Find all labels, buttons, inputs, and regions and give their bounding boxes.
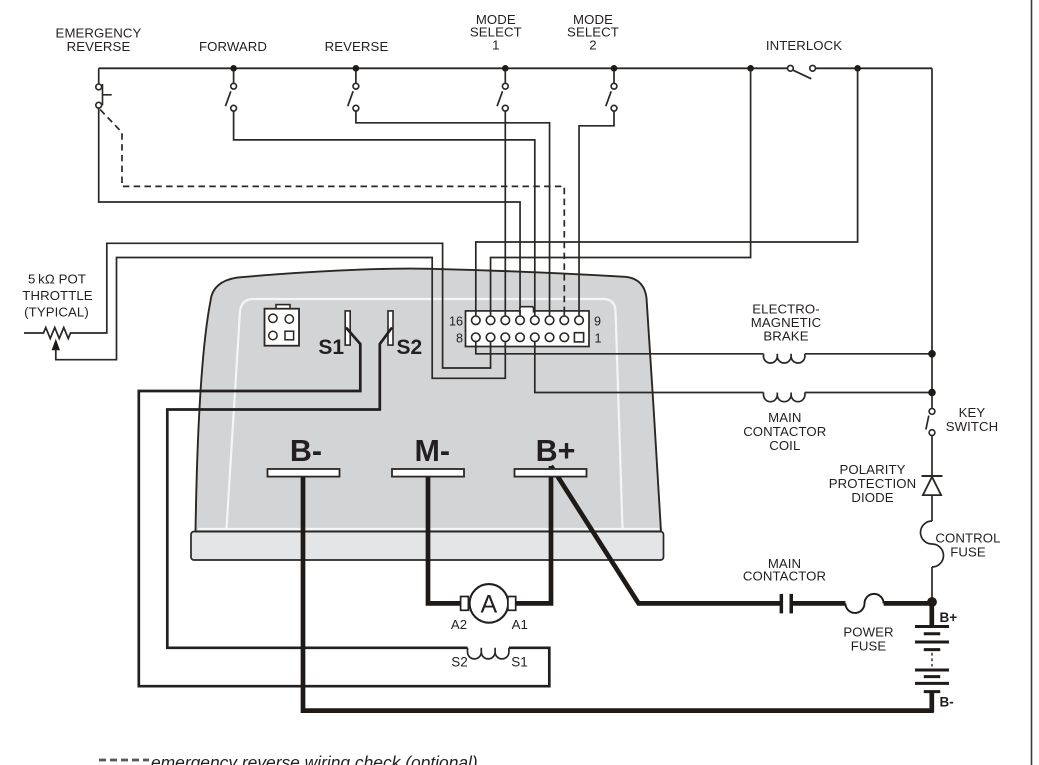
svg-text:FUSE: FUSE	[851, 639, 887, 654]
svg-text:CONTROL: CONTROL	[935, 531, 1000, 546]
svg-text:POLARITY: POLARITY	[839, 462, 905, 477]
svg-text:REVERSE: REVERSE	[67, 39, 131, 54]
svg-text:FUSE: FUSE	[950, 545, 986, 560]
svg-text:THROTTLE: THROTTLE	[22, 288, 93, 303]
svg-text:DIODE: DIODE	[851, 490, 893, 505]
svg-text:A: A	[481, 590, 498, 618]
svg-text:KEY: KEY	[959, 405, 986, 420]
svg-text:B+: B+	[536, 434, 576, 468]
svg-text:CONTACTOR: CONTACTOR	[743, 569, 826, 584]
svg-text:INTERLOCK: INTERLOCK	[766, 38, 842, 53]
svg-text:B-: B-	[940, 695, 954, 710]
svg-text:9: 9	[594, 314, 601, 328]
svg-text:COIL: COIL	[769, 438, 800, 453]
svg-text:emergency reverse wiring check: emergency reverse wiring check (optional…	[151, 753, 478, 765]
svg-text:M-: M-	[415, 434, 451, 468]
svg-text:B+: B+	[940, 610, 958, 625]
svg-text:(TYPICAL): (TYPICAL)	[24, 305, 89, 320]
svg-text:B-: B-	[290, 434, 322, 468]
svg-text:2: 2	[589, 38, 596, 53]
svg-text:1: 1	[595, 331, 602, 345]
svg-text:S2: S2	[397, 336, 423, 359]
svg-text:POWER: POWER	[843, 625, 893, 640]
svg-text:MAIN: MAIN	[768, 410, 801, 425]
svg-text:BRAKE: BRAKE	[763, 329, 808, 344]
svg-text:16: 16	[449, 314, 463, 328]
svg-text:1: 1	[492, 38, 499, 53]
svg-text:CONTACTOR: CONTACTOR	[743, 424, 826, 439]
svg-text:FORWARD: FORWARD	[199, 39, 267, 54]
svg-text:A2: A2	[451, 617, 467, 632]
svg-text:S1: S1	[318, 336, 344, 359]
svg-text:S2: S2	[451, 655, 468, 670]
svg-text:5 kΩ POT: 5 kΩ POT	[28, 272, 86, 287]
svg-text:S1: S1	[511, 655, 528, 670]
svg-text:REVERSE: REVERSE	[325, 39, 389, 54]
svg-text:8: 8	[456, 331, 463, 345]
svg-text:SWITCH: SWITCH	[946, 419, 999, 434]
svg-text:A1: A1	[512, 617, 528, 632]
svg-text:PROTECTION: PROTECTION	[829, 476, 916, 491]
